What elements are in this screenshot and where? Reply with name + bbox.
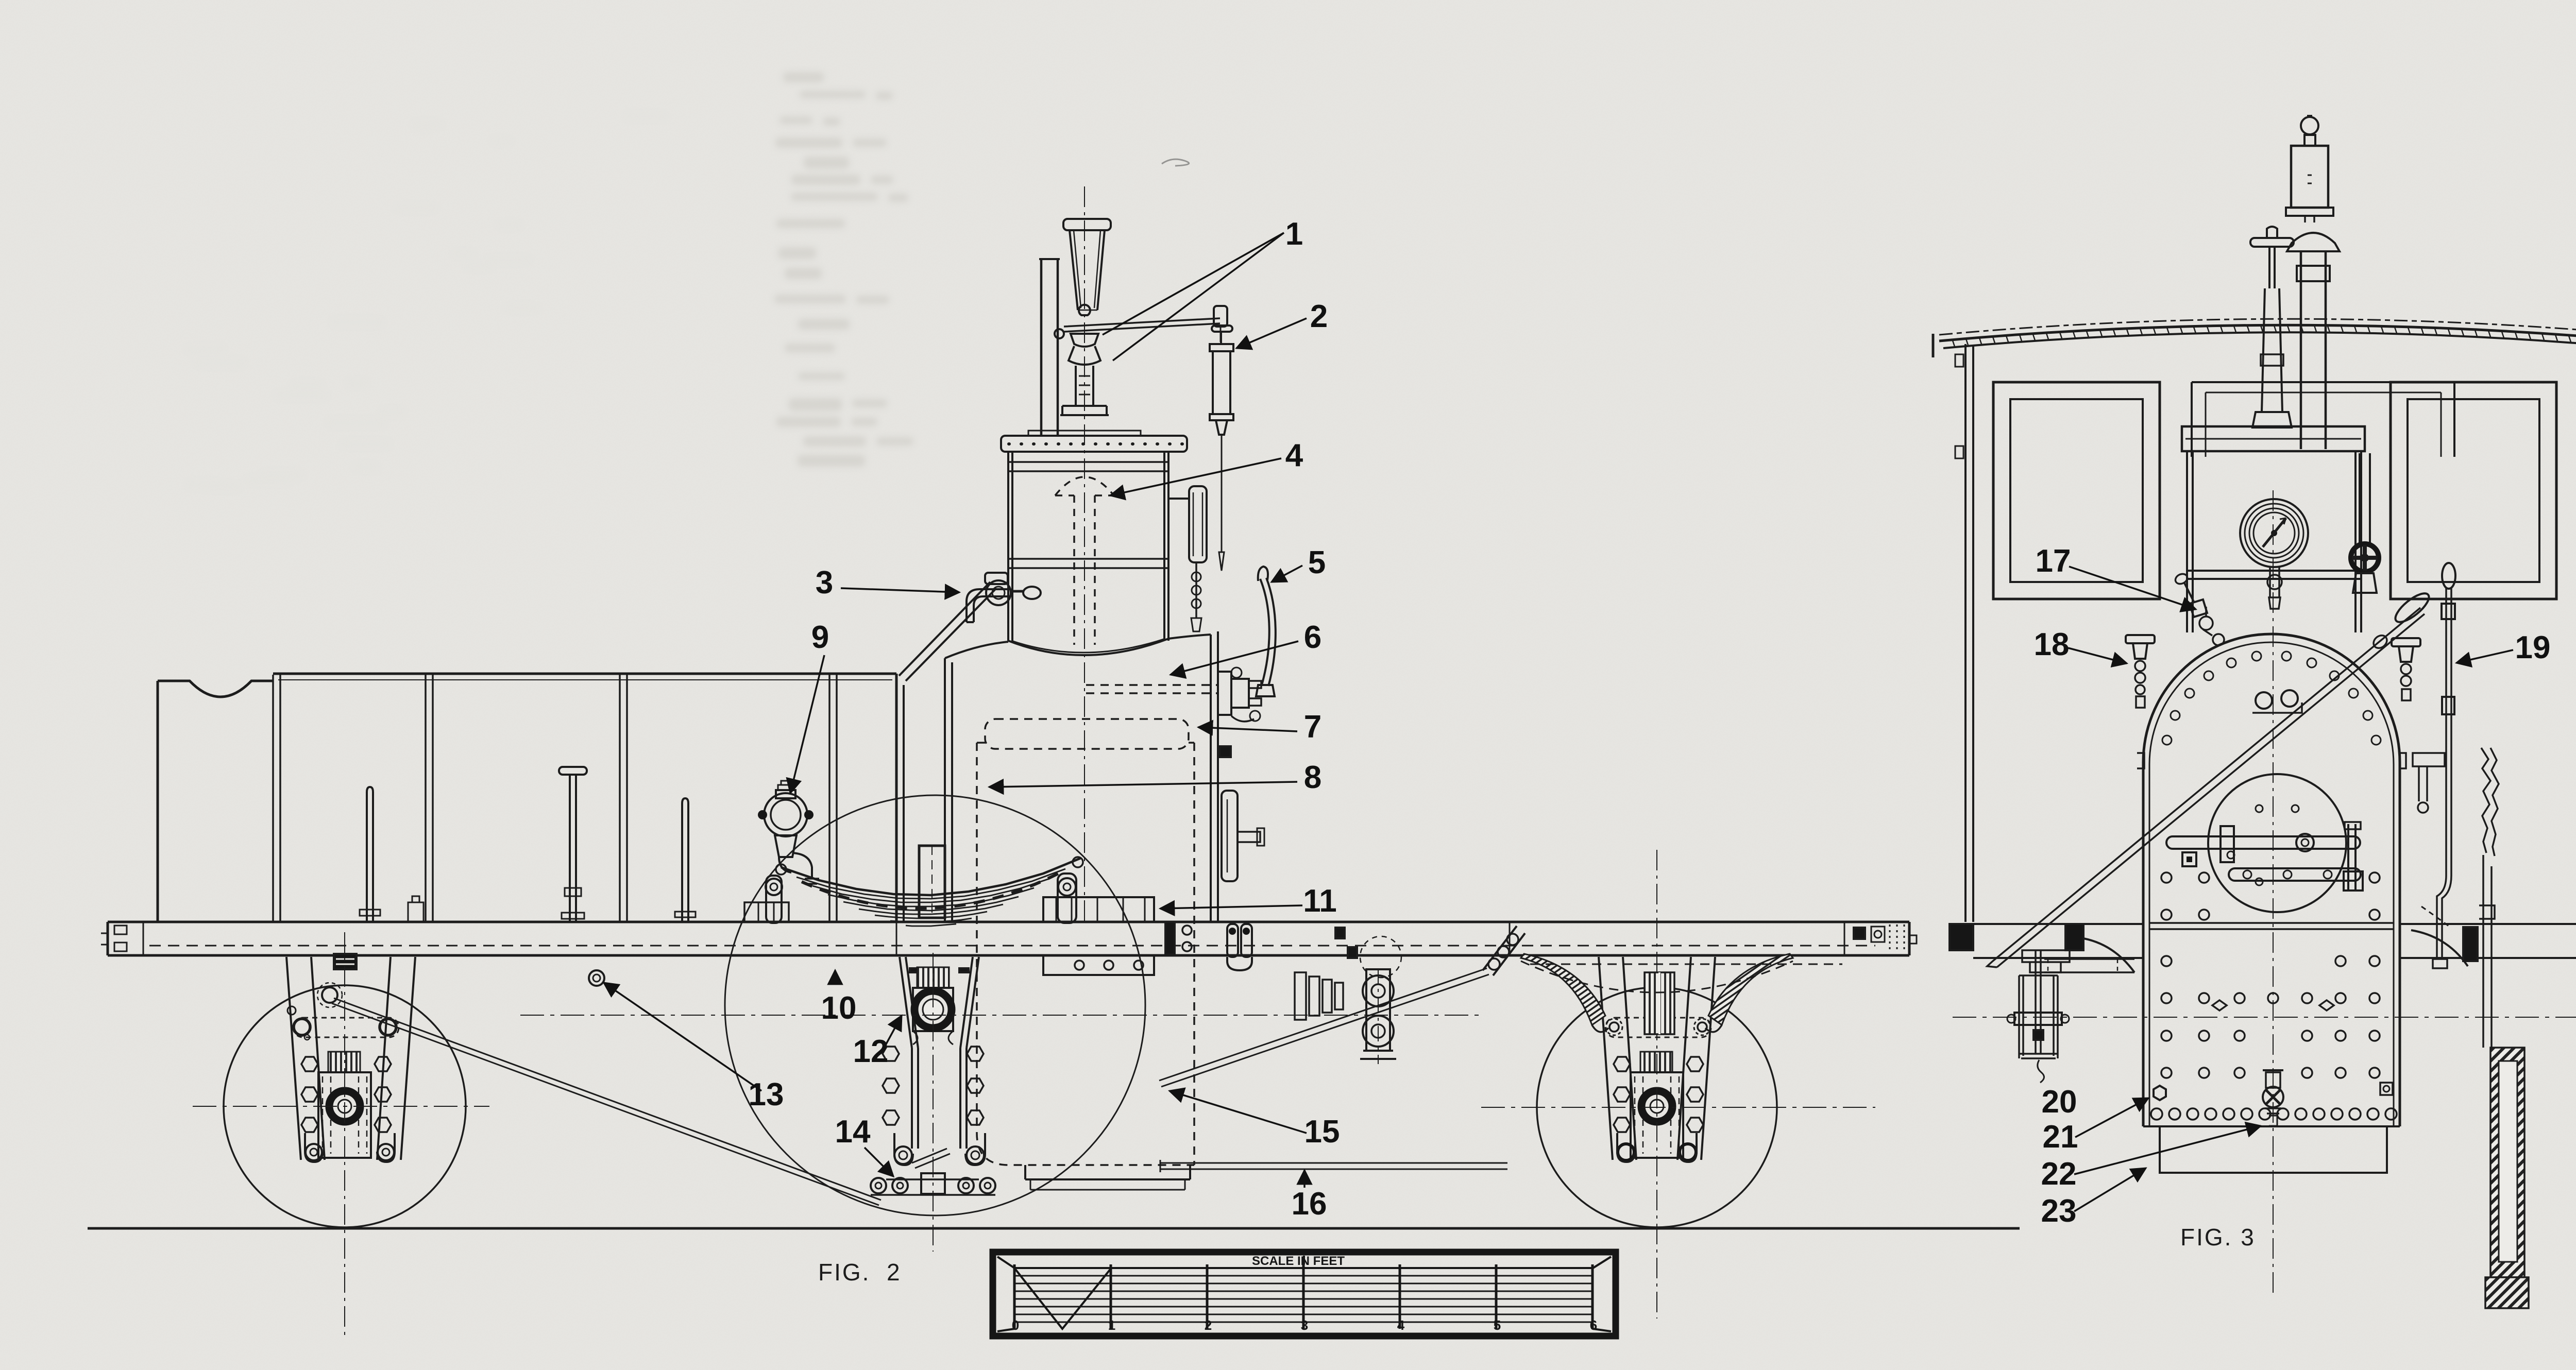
svg-text:0: 0 — [1012, 1317, 1019, 1333]
svg-text:5: 5 — [1494, 1317, 1501, 1333]
svg-text:7: 7 — [1304, 709, 1321, 745]
svg-text:11: 11 — [1303, 883, 1337, 919]
svg-text:10: 10 — [821, 990, 857, 1026]
svg-text:21: 21 — [2043, 1119, 2078, 1155]
svg-text:18: 18 — [2034, 627, 2070, 662]
svg-text:4: 4 — [1285, 438, 1303, 473]
svg-text:3: 3 — [816, 565, 833, 601]
svg-text:1: 1 — [1285, 216, 1303, 252]
svg-text:17: 17 — [2036, 543, 2071, 579]
svg-text:16: 16 — [1292, 1186, 1327, 1222]
svg-text:1: 1 — [1108, 1317, 1115, 1333]
svg-text:9: 9 — [811, 620, 829, 655]
svg-text:19: 19 — [2515, 630, 2551, 665]
svg-text:22: 22 — [2041, 1156, 2077, 1192]
svg-text:SCALE IN FEET: SCALE IN FEET — [1252, 1254, 1345, 1268]
svg-text:6: 6 — [1304, 620, 1321, 655]
svg-text:3: 3 — [1301, 1317, 1308, 1333]
svg-text:14: 14 — [835, 1114, 871, 1150]
svg-text:4: 4 — [1397, 1317, 1405, 1333]
svg-text:FIG. 3: FIG. 3 — [2180, 1224, 2256, 1251]
svg-text:5: 5 — [1308, 545, 1326, 580]
svg-text:12: 12 — [853, 1034, 889, 1069]
svg-text:20: 20 — [2042, 1084, 2077, 1120]
svg-text:13: 13 — [749, 1077, 784, 1112]
svg-text:8: 8 — [1304, 760, 1321, 795]
svg-text:23: 23 — [2041, 1193, 2077, 1229]
svg-text:15: 15 — [1304, 1114, 1340, 1150]
svg-text:6: 6 — [1590, 1317, 1597, 1333]
svg-text:FIG. 2: FIG. 2 — [818, 1259, 902, 1286]
svg-text:2: 2 — [1310, 299, 1328, 334]
svg-text:2: 2 — [1205, 1317, 1212, 1333]
